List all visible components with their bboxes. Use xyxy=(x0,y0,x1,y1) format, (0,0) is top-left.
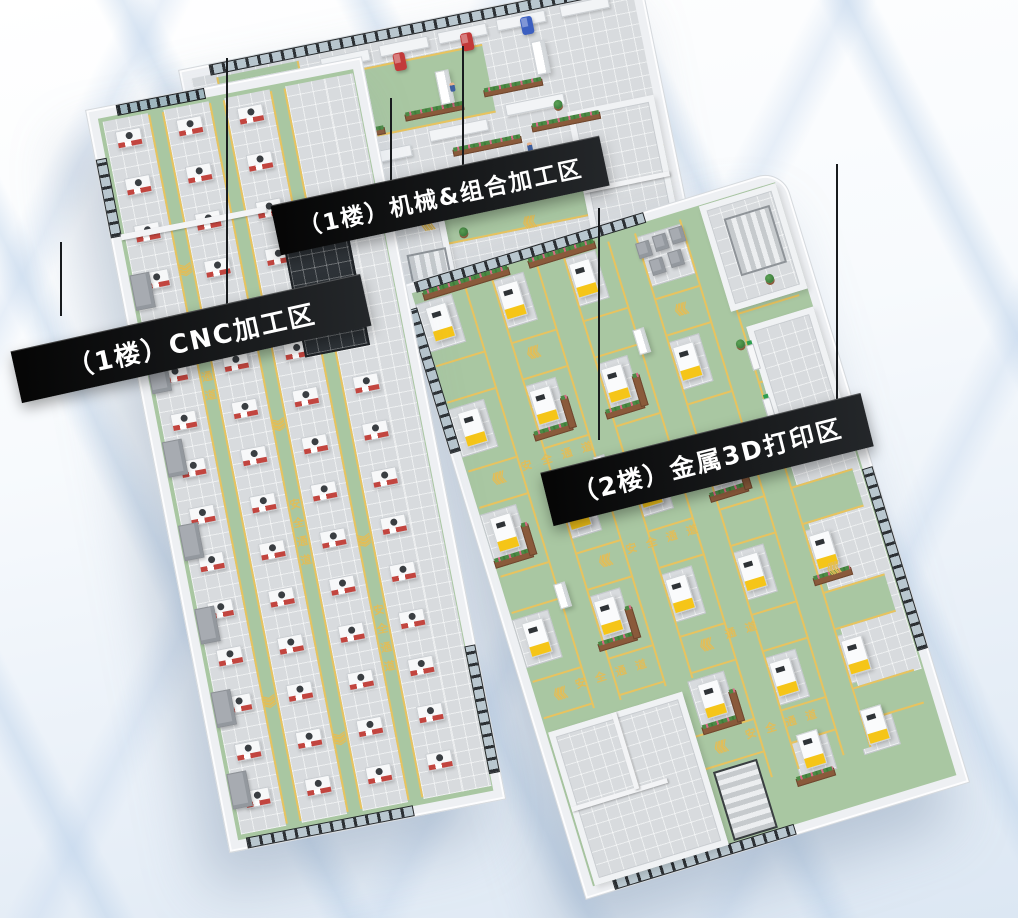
lane-chevron-icon: 《《《 xyxy=(268,419,290,439)
banner-pole xyxy=(598,208,600,440)
lane-chevron-icon: 《《《 xyxy=(175,264,197,284)
lane-chevron-icon: 《《《 xyxy=(515,211,535,233)
lane-chevron-icon: 《《《 xyxy=(259,696,281,716)
factory-3d-overview: 安全通道安全通道安全通道《《《《《《《《《《《《《《《 安全通道安全通道《《《《… xyxy=(0,0,1018,918)
lane-chevron-icon: 《《《 xyxy=(329,733,351,753)
banner-pole xyxy=(60,242,62,316)
lane-chevron-icon: 《《《 xyxy=(354,535,376,555)
banner-pole xyxy=(226,58,228,316)
